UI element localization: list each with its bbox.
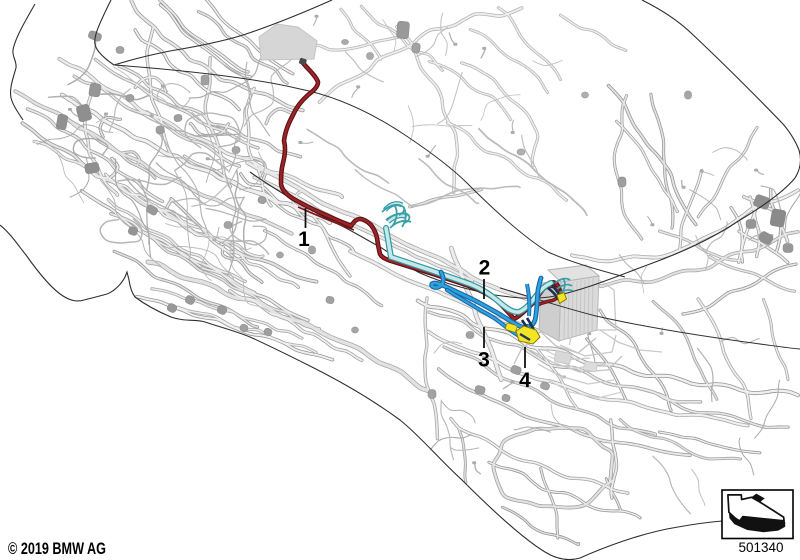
- svg-text:2: 2: [479, 257, 491, 280]
- svg-text:© 2019 BMW AG: © 2019 BMW AG: [8, 540, 106, 558]
- svg-text:501340: 501340: [738, 540, 783, 555]
- svg-text:4: 4: [519, 369, 531, 392]
- svg-text:1: 1: [298, 228, 310, 251]
- svg-text:3: 3: [478, 349, 490, 372]
